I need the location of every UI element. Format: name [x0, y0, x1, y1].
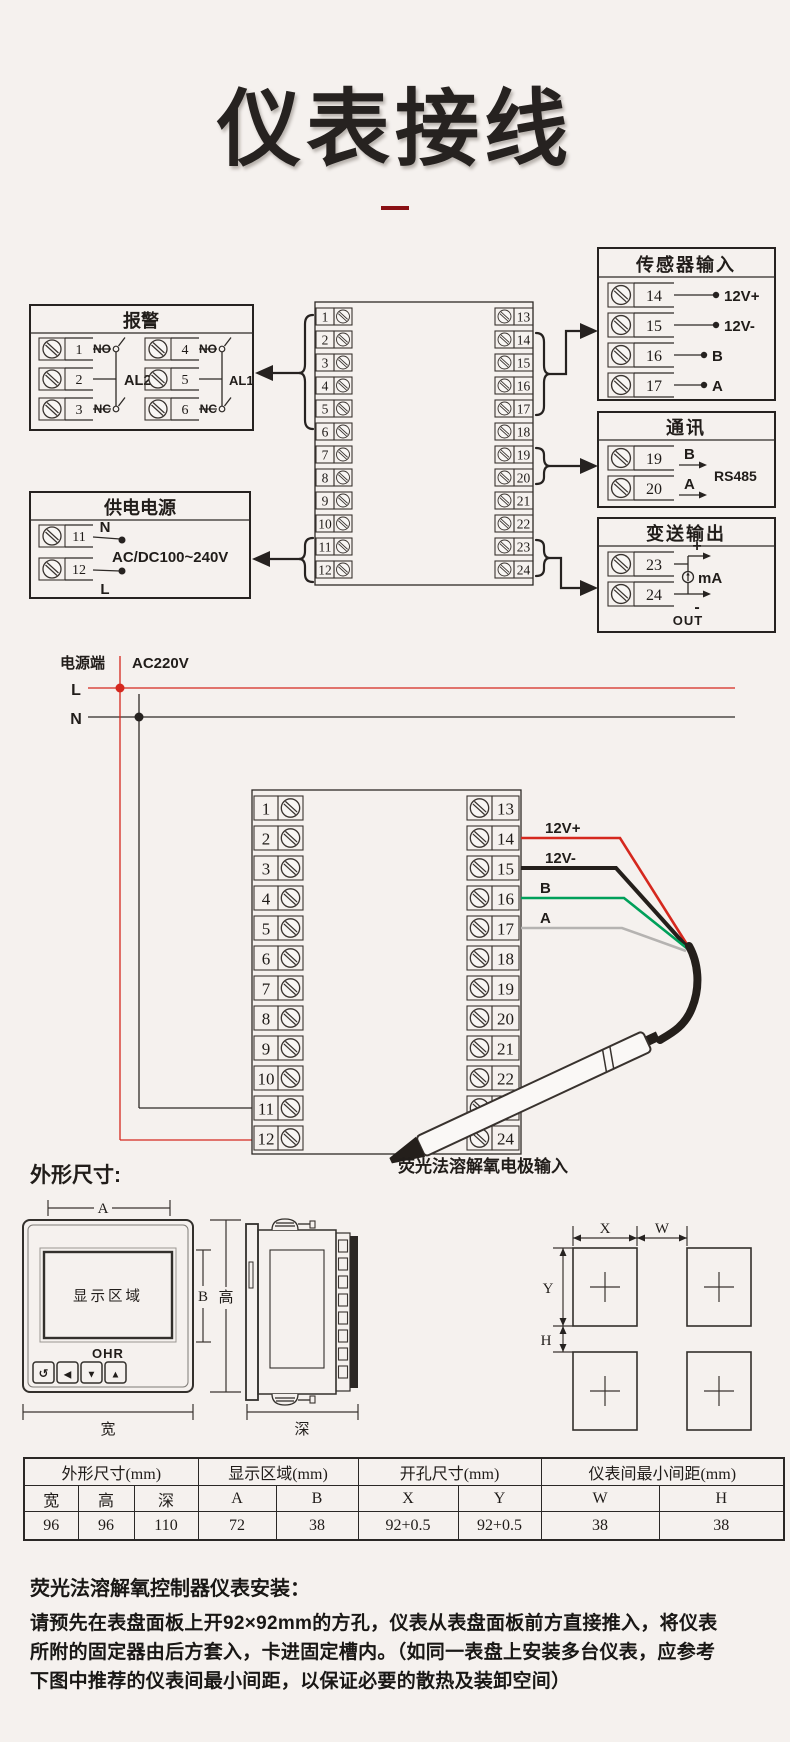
screw-icon: [281, 1039, 299, 1057]
screw-icon: [281, 1129, 299, 1147]
terminal-number: 19: [517, 448, 531, 463]
output-plus-label: +: [692, 538, 701, 555]
screw-icon: [281, 799, 299, 817]
terminal-number: 16: [497, 890, 514, 909]
terminal-number: 4: [262, 890, 271, 909]
screw-icon: [470, 799, 488, 817]
sensor-b-label: B: [712, 348, 723, 365]
sensor-12vp-label: 12V+: [724, 288, 760, 305]
dim-width-label: 宽: [100, 1421, 115, 1438]
al1-label: AL1: [229, 373, 254, 388]
terminal-number: 16: [517, 379, 531, 394]
alarm-group-al2: 1 2 3 NO NC AL2: [39, 338, 151, 421]
screw-icon: [498, 379, 511, 392]
neutral-line-label: N: [70, 711, 82, 728]
terminal-number: 9: [262, 1040, 271, 1059]
terminal-number: 13: [517, 310, 531, 325]
wire-b-label: B: [540, 880, 551, 897]
comm-box: 通讯 19 B 20 A RS485: [598, 412, 775, 507]
terminal-number: 22: [497, 1070, 514, 1089]
terminal-number: 16: [646, 348, 662, 365]
spec-col: H: [659, 1486, 784, 1512]
screw-icon: [337, 333, 350, 346]
alarm-group-al1: 4 5 6 NO NC AL1: [145, 338, 254, 421]
dimensions-heading: 外形尺寸:: [30, 1163, 121, 1187]
terminal-number: 14: [646, 288, 662, 305]
terminal-strip-right: 131415161718192021222324: [495, 308, 533, 578]
terminal-number: 12: [258, 1130, 275, 1149]
terminal-number: 5: [322, 402, 329, 417]
supply-box-title: 供电电源: [103, 497, 176, 518]
arrow-to-comm: [580, 458, 598, 474]
terminal-number: 8: [262, 1010, 271, 1029]
terminal-number: 24: [497, 1130, 515, 1149]
terminal-number: 15: [646, 318, 662, 335]
cutout-layout-drawing: X W Y H: [541, 1221, 751, 1430]
spec-col: X: [358, 1486, 458, 1512]
terminal-number: 1: [262, 800, 271, 819]
dim-b-label: B: [198, 1289, 208, 1305]
electrode-label: 荧光法溶解氧电极输入: [398, 1156, 568, 1176]
brand-logo: OHR: [92, 1346, 124, 1361]
terminal-number: 15: [497, 860, 514, 879]
screw-icon: [337, 471, 350, 484]
screw-icon: [337, 402, 350, 415]
terminal-number: 2: [322, 333, 329, 348]
screw-icon: [498, 402, 511, 415]
sensor-row-17: 17 A: [608, 373, 723, 397]
no-label: NO: [199, 342, 217, 356]
output-box: 变送输出 23 24 + - mA OUT: [598, 518, 775, 632]
screw-icon: [470, 859, 488, 877]
terminal-strip-left: 123456789101112: [254, 796, 303, 1150]
button-left-icon: ◀: [64, 1370, 72, 1381]
screw-icon: [281, 889, 299, 907]
spec-col: A: [198, 1486, 276, 1512]
screw-icon: [498, 494, 511, 507]
screw-icon: [281, 829, 299, 847]
spec-value: 92+0.5: [358, 1512, 458, 1541]
dim-depth-label: 深: [294, 1421, 309, 1438]
terminal-number: 6: [322, 425, 329, 440]
dim-a-label: A: [98, 1201, 109, 1217]
screw-icon: [470, 1009, 488, 1027]
probe-wires: 12V+ 12V- B A: [521, 820, 689, 951]
terminal-number: 5: [262, 920, 271, 939]
terminal-number: 20: [497, 1010, 514, 1029]
terminal-number: 6: [262, 950, 271, 969]
display-area-label: 显示区域: [73, 1288, 143, 1305]
ma-label: mA: [698, 570, 722, 587]
terminal-number: 1: [322, 310, 329, 325]
screw-icon: [498, 563, 511, 576]
terminal-number: 12: [318, 563, 332, 578]
install-line: 下图中推荐的仪表间最小间距，以保证必要的散热及装卸空间）: [30, 1667, 767, 1696]
no-label: NO: [93, 342, 111, 356]
terminal-number: 3: [262, 860, 271, 879]
terminal-number: 15: [517, 356, 531, 371]
power-source-label: 电源端: [60, 654, 105, 672]
alarm-box: 报警 1 2 3 NO NC: [30, 305, 254, 430]
terminal-number: 17: [646, 378, 662, 395]
terminal-number: 10: [258, 1070, 275, 1089]
terminal-number: 24: [517, 563, 531, 578]
screw-icon: [498, 517, 511, 530]
screw-icon: [498, 425, 511, 438]
screw-icon: [337, 540, 350, 553]
screw-icon: [470, 1039, 488, 1057]
screw-icon: [281, 1069, 299, 1087]
sensor-box-title: 传感器输入: [635, 254, 736, 275]
arrow-to-alarm: [255, 365, 273, 381]
supply-box: 供电电源 11 N AC/DC100~240V 12 L: [30, 492, 250, 598]
screw-icon: [498, 448, 511, 461]
button-back-icon: ↺: [38, 1367, 48, 1381]
terminal-number: 13: [497, 800, 514, 819]
screw-icon: [337, 310, 350, 323]
live-label: L: [100, 581, 109, 598]
terminal-number: 20: [646, 481, 662, 498]
terminal-number: 11: [319, 540, 332, 555]
dim-w-label: W: [655, 1221, 670, 1237]
comm-box-title: 通讯: [666, 418, 706, 438]
live-line-label: L: [71, 682, 81, 699]
spec-value: 38: [659, 1512, 784, 1541]
screw-icon: [498, 310, 511, 323]
sensor-row-16: 16 B: [608, 343, 723, 367]
terminal-block-2: 123456789101112 131415161718192021222324: [252, 790, 521, 1154]
sensor-a-label: A: [712, 378, 723, 395]
sensor-row-15: 15 12V-: [608, 313, 755, 337]
terminal-number: 11: [72, 530, 85, 545]
mount-clamp-bottom: [272, 1394, 298, 1405]
terminal-number: 11: [258, 1100, 274, 1119]
alarm-box-title: 报警: [123, 310, 159, 331]
terminal-number: 21: [517, 494, 531, 509]
screw-icon: [470, 1069, 488, 1087]
terminal-number: 17: [517, 402, 531, 417]
screw-icon: [281, 949, 299, 967]
terminal-number: 3: [322, 356, 329, 371]
terminal-number: 19: [646, 451, 662, 468]
terminal-number: 24: [646, 587, 662, 604]
terminal-number: 22: [517, 517, 531, 532]
terminal-number: 7: [262, 980, 271, 999]
screw-icon: [281, 1099, 299, 1117]
voltage-range-label: AC/DC100~240V: [112, 549, 228, 566]
button-down-icon: ▼: [87, 1370, 97, 1381]
spec-group-display: 显示区域(mm): [198, 1458, 358, 1486]
screw-icon: [337, 448, 350, 461]
output-box-title: 变送输出: [646, 523, 726, 544]
terminal-number: 19: [497, 980, 514, 999]
screw-icon: [470, 949, 488, 967]
spec-col: 高: [78, 1486, 134, 1512]
rs485-label: RS485: [714, 468, 757, 484]
screw-icon: [281, 1009, 299, 1027]
terminal-number: 1: [76, 343, 83, 358]
arrow-to-sensor: [580, 323, 598, 339]
arrow-to-supply: [252, 551, 270, 567]
sensor-12vm-label: 12V-: [724, 318, 755, 335]
screw-icon: [337, 356, 350, 369]
install-heading: 荧光法溶解氧控制器仪表安装：: [30, 1572, 767, 1601]
sensor-input-box: 传感器输入 14 12V+ 15 12V- 16 B: [598, 248, 775, 400]
voltage-label: AC220V: [132, 655, 189, 672]
terminal-number: 8: [322, 471, 329, 486]
button-up-icon: ▲: [111, 1370, 121, 1381]
spec-table: 外形尺寸(mm) 显示区域(mm) 开孔尺寸(mm) 仪表间最小间距(mm) 宽…: [23, 1457, 785, 1541]
terminal-number: 12: [72, 563, 86, 578]
terminal-number: 2: [262, 830, 271, 849]
terminal-number: 10: [318, 517, 332, 532]
terminal-number: 5: [182, 373, 189, 388]
connector-arrows: [252, 315, 598, 596]
neutral-label: N: [100, 519, 111, 536]
install-line: 所附的固定器由后方套入，卡进固定槽内。（如同一表盘上安装多台仪表，应参考: [30, 1638, 767, 1667]
spec-value: 38: [276, 1512, 358, 1541]
spec-col: 宽: [24, 1486, 78, 1512]
spec-value: 96: [24, 1512, 78, 1541]
terminal-number: 23: [517, 540, 531, 555]
screw-icon: [470, 829, 488, 847]
terminal-number: 2: [76, 373, 83, 388]
spec-value: 38: [541, 1512, 659, 1541]
nc-label: NC: [200, 402, 218, 416]
terminal-strip-left: 123456789101112: [316, 308, 352, 578]
screw-icon: [470, 919, 488, 937]
nc-label: NC: [94, 402, 112, 416]
screw-icon: [337, 517, 350, 530]
spec-col: W: [541, 1486, 659, 1512]
terminal-number: 20: [517, 471, 531, 486]
spec-group-spacing: 仪表间最小间距(mm): [541, 1458, 784, 1486]
terminal-number: 14: [497, 830, 515, 849]
screw-icon: [498, 540, 511, 553]
screw-icon: [337, 425, 350, 438]
spec-value: 92+0.5: [458, 1512, 541, 1541]
dim-x-label: X: [600, 1221, 611, 1237]
out-label: OUT: [673, 613, 703, 628]
power-lines: 电源端 AC220V L N: [60, 654, 735, 1140]
screw-icon: [337, 563, 350, 576]
front-view-drawing: A 显示区域 OHR ↺ ◀ ▼ ▲ 宽 B 高: [23, 1200, 241, 1438]
terminal-number: 4: [182, 343, 189, 358]
spec-col: B: [276, 1486, 358, 1512]
spec-group-outline: 外形尺寸(mm): [24, 1458, 198, 1486]
spec-value: 96: [78, 1512, 134, 1541]
dim-y-label: Y: [543, 1281, 554, 1297]
terminal-number: 18: [517, 425, 531, 440]
install-line: 请预先在表盘面板上开92×92mm的方孔，仪表从表盘面板前方直接推入，将仪表: [30, 1609, 767, 1638]
terminal-number: 4: [322, 379, 329, 394]
terminal-number: 18: [497, 950, 514, 969]
wire-12vm-label: 12V-: [545, 850, 576, 867]
screw-icon: [498, 333, 511, 346]
side-view-drawing: 深: [246, 1219, 358, 1438]
terminal-number: 17: [497, 920, 515, 939]
spec-col: Y: [458, 1486, 541, 1512]
terminal-number: 7: [322, 448, 329, 463]
screw-icon: [281, 979, 299, 997]
screw-icon: [337, 494, 350, 507]
dim-h-label: H: [541, 1333, 552, 1349]
sensor-row-14: 14 12V+: [608, 283, 760, 307]
screw-icon: [498, 356, 511, 369]
terminal-block-1: 123456789101112 131415161718192021222324: [315, 302, 533, 585]
screw-icon: [498, 471, 511, 484]
spec-value: 110: [134, 1512, 198, 1541]
comm-a-label: A: [684, 476, 695, 493]
wire-12vp-label: 12V+: [545, 820, 581, 837]
spec-group-cutout: 开孔尺寸(mm): [358, 1458, 541, 1486]
install-instructions: 荧光法溶解氧控制器仪表安装： 请预先在表盘面板上开92×92mm的方孔，仪表从表…: [30, 1572, 767, 1696]
terminal-number: 6: [182, 403, 189, 418]
arrow-to-output: [580, 580, 598, 596]
al2-label: AL2: [124, 373, 151, 389]
do-electrode: 荧光法溶解氧电极输入: [386, 946, 697, 1176]
terminal-number: 23: [646, 557, 662, 574]
spec-col: 深: [134, 1486, 198, 1512]
terminal-number: 21: [497, 1040, 514, 1059]
screw-icon: [337, 379, 350, 392]
spec-value: 72: [198, 1512, 276, 1541]
mount-clamp-top: [272, 1219, 298, 1230]
screw-icon: [470, 889, 488, 907]
page: 仪表接线 123456789101112 1314151617181920212…: [0, 0, 790, 1742]
terminal-number: 3: [76, 403, 83, 418]
terminal-number: 14: [517, 333, 531, 348]
wire-a-label: A: [540, 910, 551, 927]
dim-height-label: 高: [218, 1289, 233, 1306]
comm-b-label: B: [684, 446, 695, 463]
screw-icon: [281, 859, 299, 877]
screw-icon: [470, 979, 488, 997]
screw-icon: [281, 919, 299, 937]
terminal-number: 9: [322, 494, 329, 509]
